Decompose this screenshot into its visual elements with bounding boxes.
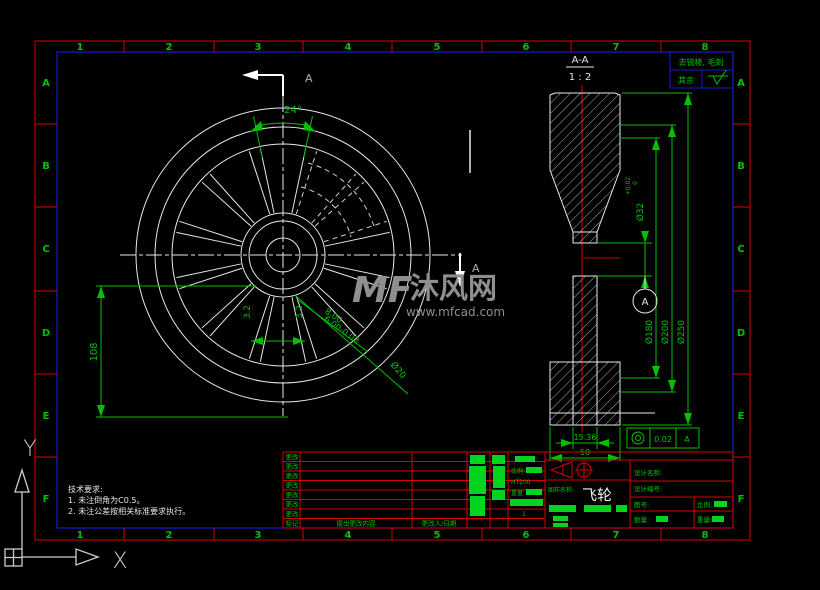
- notes-title: 技术要求:: [68, 484, 103, 494]
- revision-row-label: 更改: [286, 509, 300, 518]
- grid-row-label: E: [43, 411, 50, 422]
- grid-col-label: 2: [166, 530, 173, 541]
- cad-drawing-canvas: 1 2 3 4 5 6 7 8 1 2 3 4 5 6 7 8 A B C D …: [0, 0, 820, 590]
- parameter-stack: 比例 HT200 重量 1: [510, 467, 543, 518]
- front-view: A A 24° 108 3.2: [89, 70, 480, 417]
- revision-content-header: 提出更改内容: [337, 519, 377, 528]
- title-qty-label: 数量:: [634, 515, 649, 524]
- dim-angle: 24°: [284, 105, 302, 116]
- grid-row-label: C: [737, 244, 744, 255]
- title-block: 图样名称: 飞轮 设计名称: 设计编号: 图号: 比例: 数量: 重量:: [545, 452, 733, 528]
- watermark-url: www.mfcad.com: [406, 305, 505, 319]
- revision-row-label: 更改: [286, 462, 300, 471]
- revision-person-header: 更改人/日期: [422, 519, 457, 528]
- watermark: MF 沐风网 www.mfcad.com: [352, 270, 505, 319]
- datum-label: A: [642, 297, 649, 308]
- param-material: HT200: [511, 479, 531, 486]
- ucs-icon: Y X: [5, 437, 128, 574]
- watermark-logo: MF: [352, 270, 413, 311]
- revision-row-label: 更改: [286, 490, 300, 499]
- grid-col-label: 7: [613, 530, 620, 541]
- grid-col-label: 5: [434, 530, 441, 541]
- revision-row-label: 更改: [286, 481, 300, 490]
- dim-bore-tol-up: +0.02: [625, 177, 632, 196]
- notes-line1: 1. 未注倒角为C0.5。: [68, 495, 144, 505]
- notes-line2: 2. 未注公差按相关标准要求执行。: [68, 506, 190, 516]
- grid-row-label: F: [738, 494, 745, 505]
- grid-row-label: D: [737, 328, 745, 339]
- dim-hub-width: 15.36: [574, 433, 597, 442]
- grid-row-label: F: [43, 494, 50, 505]
- surface-note-box: 去锐棱, 毛刺 其余: [670, 52, 733, 88]
- grid-row-label: E: [738, 411, 745, 422]
- revision-row-label: 更改: [286, 452, 300, 461]
- title-weight-label: 重量:: [697, 516, 712, 524]
- part-name-label: 图样名称:: [548, 486, 574, 494]
- title-scale-label: 比例:: [697, 500, 712, 509]
- section-cut-line: A A: [242, 70, 480, 287]
- deburr-note: 去锐棱, 毛刺: [678, 57, 723, 67]
- param-weight-label: 重量: [511, 489, 523, 497]
- watermark-brand: 沐风网: [410, 271, 497, 305]
- grid-col-label: 5: [434, 42, 441, 53]
- dim-hole: Ø20: [388, 360, 409, 381]
- front-view-dimensions: [96, 116, 408, 417]
- others-label: 其余: [678, 75, 694, 85]
- section-scale: 1 : 2: [569, 72, 591, 83]
- dim-spoke-w2: 3.2: [295, 305, 305, 319]
- concentricity-icon: [632, 432, 644, 444]
- surface-finish-icon: [708, 70, 728, 84]
- grid-row-label: D: [42, 328, 50, 339]
- redacted-title-bars: [549, 505, 627, 527]
- title-field3-label: 图号:: [634, 501, 649, 509]
- grid-col-label: 6: [523, 530, 530, 541]
- dim-spoke-w1: 3.2: [243, 305, 253, 319]
- section-body: [550, 93, 655, 425]
- grid-col-label: 4: [345, 530, 352, 541]
- param-scale-label: 比例: [511, 467, 523, 475]
- grid-col-label: 1: [77, 530, 84, 541]
- grid-row-label: B: [737, 161, 745, 172]
- section-view: A-A 1 : 2: [550, 55, 699, 462]
- grid-col-label: 1: [77, 42, 84, 53]
- grid-row-label: B: [42, 161, 50, 172]
- grid-col-label: 6: [523, 42, 530, 53]
- grid-row-label: A: [737, 78, 745, 89]
- grid-col-label: 8: [702, 42, 709, 53]
- hidden-lines: [296, 151, 386, 241]
- gdt-value: 0.02: [654, 435, 672, 444]
- cut-label-top: A: [305, 72, 313, 85]
- grid-col-label: 3: [255, 530, 262, 541]
- grid-row-label: C: [42, 244, 49, 255]
- param-count: 1: [522, 511, 526, 518]
- gdt-frame: 0.02 A: [627, 428, 699, 448]
- revision-mark-label: 标记: [286, 519, 300, 528]
- dim-height: 108: [89, 342, 100, 361]
- grid-col-label: 3: [255, 42, 262, 53]
- dim-d200: Ø200: [660, 320, 671, 345]
- cut-arrow-left-icon: [242, 70, 258, 80]
- technical-notes: 技术要求: 1. 未注倒角为C0.5。 2. 未注公差按相关标准要求执行。: [68, 484, 190, 516]
- title-field1-label: 设计名称:: [634, 468, 662, 477]
- dim-bore-tol-dn: 0: [632, 181, 639, 185]
- ucs-x-label: X: [112, 549, 127, 574]
- revision-row-label: 更改: [286, 500, 300, 509]
- gdt-datum: A: [684, 435, 690, 444]
- title-field2-label: 设计编号:: [634, 484, 662, 493]
- part-name: 飞轮: [582, 486, 612, 504]
- grid-col-label: 7: [613, 42, 620, 53]
- grid-col-label: 8: [702, 530, 709, 541]
- ucs-y-label: Y: [23, 437, 36, 462]
- dim-d180: Ø180: [644, 320, 655, 345]
- section-label: A-A: [572, 55, 589, 66]
- dim-d250: Ø250: [676, 320, 687, 345]
- dim-bore: Ø32: [635, 203, 646, 222]
- projection-symbol-icon: [551, 461, 593, 479]
- revision-row-label: 更改: [286, 471, 300, 480]
- grid-row-label: A: [42, 78, 50, 89]
- grid-col-label: 2: [166, 42, 173, 53]
- datum-symbol: A: [633, 276, 657, 313]
- grid-col-label: 4: [345, 42, 352, 53]
